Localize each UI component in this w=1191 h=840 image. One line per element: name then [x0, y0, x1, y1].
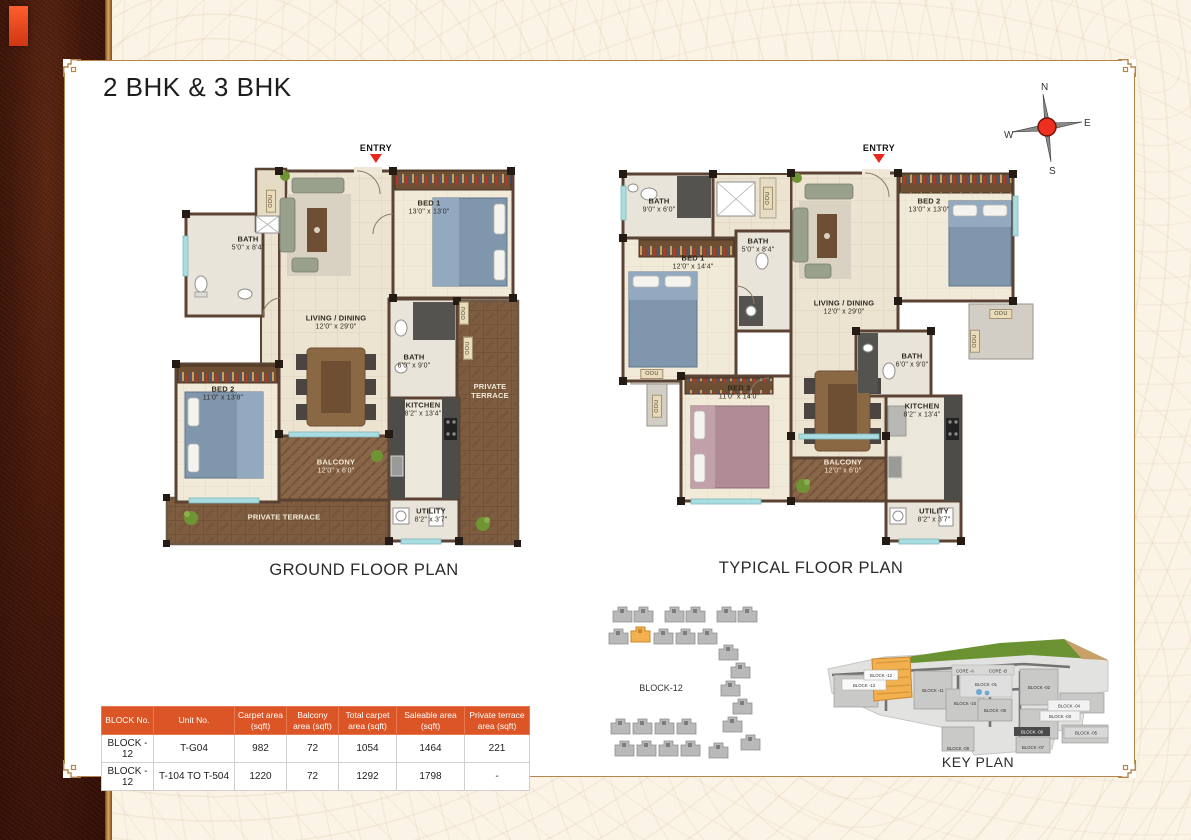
- room-name: BATH: [742, 237, 775, 246]
- room-label-balcony: BALCONY 12'0" x 6'0": [824, 458, 862, 475]
- room-dims: 12'0" x 6'0": [317, 467, 355, 475]
- cell-total-carpet-area: 1292: [339, 763, 397, 791]
- room-label-living-dining: LIVING / DINING 12'0" x 29'0": [306, 314, 367, 331]
- room-dims: 12'0" x 29'0": [814, 308, 875, 316]
- block-label: BLOCK -07: [1022, 745, 1045, 750]
- room-name: BALCONY: [317, 458, 355, 467]
- cell-saleable-area: 1798: [397, 763, 465, 791]
- table-row: BLOCK - 12 T-104 TO T-504 1220 72 1292 1…: [102, 763, 530, 791]
- room-dims: 12'0" x 6'0": [824, 467, 862, 475]
- room-dims: 13'0" x 13'0": [409, 208, 450, 216]
- odu-label: ODU: [266, 189, 276, 212]
- block-label: BLOCK -10: [954, 701, 977, 706]
- table-header-row: BLOCK No. Unit No. Carpet area (sqft) Ba…: [102, 707, 530, 735]
- odu-label: ODU: [763, 186, 773, 209]
- odu-label: ODU: [459, 301, 469, 324]
- room-label-bath2: BATH 6'0" x 9'0": [398, 353, 431, 370]
- room-name: BATH: [896, 352, 929, 361]
- room-name: BALCONY: [824, 458, 862, 467]
- room-label-bed1: BED 1 12'0" x 14'4": [673, 254, 714, 271]
- ground-plan-caption: GROUND FLOOR PLAN: [269, 561, 458, 580]
- corner-ornament-icon: [1118, 760, 1136, 778]
- room-dims: 11'0" x 13'8": [203, 394, 243, 402]
- room-name: LIVING / DINING: [814, 299, 875, 308]
- typical-floor-plan: ENTRY: [619, 156, 1039, 551]
- room-name: KITCHEN: [904, 402, 941, 411]
- block-12-diagram-label: BLOCK-12: [639, 683, 683, 693]
- building-footprints: [609, 607, 760, 758]
- room-label-bed2: BED 2 13'0" x 13'0": [909, 197, 950, 214]
- cell-block-no: BLOCK - 12: [102, 763, 154, 791]
- cell-unit-no: T-G04: [154, 735, 235, 763]
- room-name: UTILITY: [918, 507, 951, 516]
- col-header-balcony-area: Balcony area (sqft): [287, 707, 339, 735]
- room-dims: 9'0" x 6'0": [643, 206, 676, 214]
- plants: [796, 479, 810, 493]
- block-label: BLOCK -11: [922, 688, 944, 693]
- room-name: BATH: [643, 197, 676, 206]
- room-dims: 11'0" x 14'0": [719, 393, 759, 401]
- room-name: BED 2: [909, 197, 950, 206]
- room-dims: 5'0" x 8'4": [742, 246, 775, 254]
- room-name: UTILITY: [415, 507, 448, 516]
- odu-label: ODU: [970, 329, 980, 352]
- room-dims: 6'0" x 9'0": [896, 361, 929, 369]
- cell-balcony-area: 72: [287, 763, 339, 791]
- key-plan: BLOCK -13 BLOCK -12 BLOCK -11 CORE -A CO…: [824, 631, 1112, 764]
- corner-ornament-icon: [63, 59, 81, 77]
- corner-ornament-icon: [63, 760, 81, 778]
- col-header-unit-no: Unit No.: [154, 707, 235, 735]
- odu-label: ODU: [640, 369, 663, 379]
- room-name: BED 1: [409, 199, 450, 208]
- odu-label: ODU: [989, 309, 1012, 319]
- content-panel: 2 BHK & 3 BHK N E W S ENTRY: [64, 60, 1135, 777]
- brochure-page: 2 BHK & 3 BHK N E W S ENTRY: [0, 0, 1191, 840]
- block-label: BLOCK -03: [1049, 714, 1072, 719]
- room-label-bath3: BATH 9'0" x 6'0": [643, 197, 676, 214]
- compass-star: [1012, 94, 1082, 162]
- block-label: BLOCK -04: [1058, 704, 1081, 709]
- col-header-carpet-area: Carpet area (sqft): [235, 707, 287, 735]
- room-dims: 8'2" x 13'4": [405, 410, 442, 418]
- water-feature-icon: [976, 689, 982, 695]
- compass-north-label: N: [1041, 82, 1048, 93]
- room-name: PRIVATE TERRACE: [248, 514, 321, 523]
- cell-saleable-area: 1464: [397, 735, 465, 763]
- odu-label: ODU: [463, 336, 473, 359]
- room-dims: 12'0" x 29'0": [306, 323, 367, 331]
- room-name: BATH: [398, 353, 431, 362]
- room-dims: 8'2" x 3'7": [918, 516, 951, 524]
- compass-west-label: W: [1004, 130, 1014, 141]
- typical-floor-plan-drawing: [619, 156, 1039, 551]
- room-dims: 5'0" x 8'4": [232, 244, 265, 252]
- block-label: BLOCK -13: [853, 683, 876, 688]
- room-name: BED 1: [673, 254, 714, 263]
- compass-south-label: S: [1049, 166, 1056, 177]
- cell-block-no: BLOCK - 12: [102, 735, 154, 763]
- room-label-bath1: BATH 5'0" x 8'4": [742, 237, 775, 254]
- room-label-bath2: BATH 6'0" x 9'0": [896, 352, 929, 369]
- room-name: LIVING / DINING: [306, 314, 367, 323]
- room-name: BATH: [232, 235, 265, 244]
- block-label: BLOCK -05: [1075, 731, 1098, 736]
- col-header-total-carpet-area: Total carpet area (sqft): [339, 707, 397, 735]
- room-dims: 8'2" x 13'4": [904, 411, 941, 419]
- cell-private-terrace-area: -: [465, 763, 530, 791]
- room-label-bed3: BED 3 11'0" x 14'0": [719, 384, 759, 401]
- highlighted-block-icon: [631, 627, 650, 642]
- block-label: BLOCK -09: [947, 746, 970, 751]
- cell-private-terrace-area: 221: [465, 735, 530, 763]
- col-header-block-no: BLOCK No.: [102, 707, 154, 735]
- col-header-saleable-area: Saleable area (sqft): [397, 707, 465, 735]
- closet-icon: [256, 216, 279, 233]
- block-label: BLOCK -06: [1021, 730, 1044, 735]
- block-label: BLOCK -08: [984, 708, 1007, 713]
- cell-unit-no: T-104 TO T-504: [154, 763, 235, 791]
- area-table: BLOCK No. Unit No. Carpet area (sqft) Ba…: [101, 706, 530, 791]
- room-name: KITCHEN: [405, 401, 442, 410]
- room-label-bath: BATH 5'0" x 8'4": [232, 235, 265, 252]
- block-12-diagram: BLOCK-12: [599, 599, 784, 776]
- room-dims: 13'0" x 13'0": [909, 206, 950, 214]
- room-dims: 12'0" x 14'4": [673, 263, 714, 271]
- cell-carpet-area: 982: [235, 735, 287, 763]
- block-label: CORE -B: [989, 669, 1007, 674]
- block-label: CORE -A: [956, 669, 974, 674]
- cell-total-carpet-area: 1054: [339, 735, 397, 763]
- room-label-utility: UTILITY 8'2" x 3'7": [918, 507, 951, 524]
- col-header-private-terrace-area: Private terrace area (sqft): [465, 707, 530, 735]
- compass-east-label: E: [1084, 118, 1091, 129]
- cell-carpet-area: 1220: [235, 763, 287, 791]
- block-label: BLOCK -12: [870, 673, 893, 678]
- water-feature-icon: [985, 691, 990, 696]
- block-label: BLOCK -01: [975, 682, 998, 687]
- room-label-kitchen: KITCHEN 8'2" x 13'4": [904, 402, 941, 419]
- odu-label: ODU: [652, 394, 662, 417]
- entry-label: ENTRY: [863, 143, 895, 153]
- room-label-kitchen: KITCHEN 8'2" x 13'4": [405, 401, 442, 418]
- entry-label: ENTRY: [360, 143, 392, 153]
- room-dims: 8'2" x 3'7": [415, 516, 448, 524]
- table-row: BLOCK - 12 T-G04 982 72 1054 1464 221: [102, 735, 530, 763]
- room-name: BED 2: [203, 385, 243, 394]
- room-label-bed2: BED 2 11'0" x 13'8": [203, 385, 243, 402]
- room-dims: 6'0" x 9'0": [398, 362, 431, 370]
- room-label-utility: UTILITY 8'2" x 3'7": [415, 507, 448, 524]
- orange-accent-tab: [9, 6, 28, 46]
- room-name: BED 3: [719, 384, 759, 393]
- key-plan-caption: KEY PLAN: [942, 754, 1014, 770]
- typical-plan-caption: TYPICAL FLOOR PLAN: [719, 559, 903, 578]
- room-label-balcony: BALCONY 12'0" x 6'0": [317, 458, 355, 475]
- room-label-bed1: BED 1 13'0" x 13'0": [409, 199, 450, 216]
- dining-table-icon: [296, 348, 376, 426]
- block-label: BLOCK -02: [1028, 685, 1051, 690]
- room-label-private-terrace-right: PRIVATE TERRACE: [464, 383, 516, 401]
- page-title: 2 BHK & 3 BHK: [103, 72, 292, 103]
- room-label-living-dining: LIVING / DINING 12'0" x 29'0": [814, 299, 875, 316]
- room-label-private-terrace-bottom: PRIVATE TERRACE: [248, 514, 321, 523]
- cell-balcony-area: 72: [287, 735, 339, 763]
- corner-ornament-icon: [1118, 59, 1136, 77]
- ground-floor-plan: ENTRY: [161, 156, 521, 551]
- room-name: PRIVATE TERRACE: [464, 383, 516, 401]
